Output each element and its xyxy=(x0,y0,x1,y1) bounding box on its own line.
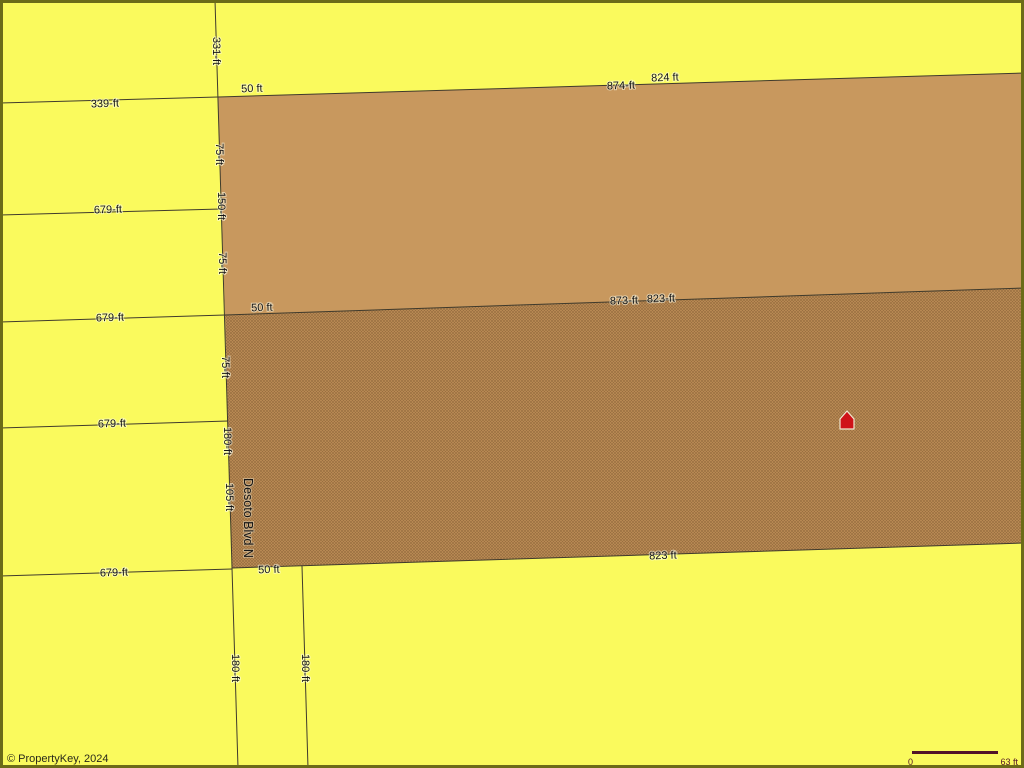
road-width-label-top: 50 ft xyxy=(241,83,263,96)
dim-label-679-a: 679-ft xyxy=(94,204,123,217)
dim-label-873: 873-ft xyxy=(610,295,639,308)
dim-label-180-c: 180-ft xyxy=(299,654,311,682)
dim-label-679-c: 679-ft xyxy=(98,418,127,431)
dim-label-874: 874-ft xyxy=(607,80,636,93)
dim-label-823-south: 823 ft xyxy=(649,550,677,563)
street-label-desoto-blvd-n: Desoto Blvd N xyxy=(241,478,255,558)
dim-label-679-d: 679-ft xyxy=(100,567,129,580)
dim-label-105: 105-ft xyxy=(223,483,235,511)
parcel-upper[interactable] xyxy=(218,73,1024,315)
dim-label-180-a: 180-ft xyxy=(221,427,233,455)
scale-bar-rule xyxy=(912,751,998,754)
dim-label-679-b: 679-ft xyxy=(96,312,125,325)
dim-label-824: 824 ft xyxy=(651,72,679,85)
parcel-map[interactable]: 339-ft 679-ft 679-ft 679-ft 679-ft 50 ft… xyxy=(0,0,1024,768)
dim-label-339: 339-ft xyxy=(91,98,120,111)
road-width-label-bottom: 50 ft xyxy=(258,564,280,577)
dim-label-75-a: 75-ft xyxy=(213,143,225,165)
dim-label-150: 150-ft xyxy=(215,192,227,220)
dim-label-331: 331-ft xyxy=(210,37,222,65)
dim-label-75-c: 75-ft xyxy=(219,356,231,378)
parcel-lower-hatched[interactable] xyxy=(225,288,1024,568)
dim-label-823-mid: 823-ft xyxy=(647,293,676,306)
copyright-attribution: © PropertyKey, 2024 xyxy=(7,753,108,765)
dim-label-180-b: 180-ft xyxy=(229,654,241,682)
road-width-label-mid: 50 ft xyxy=(251,302,273,315)
dim-label-75-b: 75-ft xyxy=(216,252,228,274)
